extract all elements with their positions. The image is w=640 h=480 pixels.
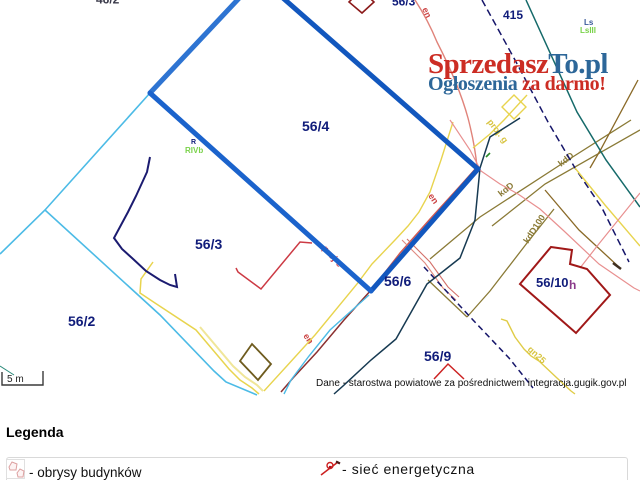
svg-text:415: 415 [503,8,523,22]
svg-text:56/3: 56/3 [392,0,416,9]
svg-text:LsIII: LsIII [580,26,596,35]
svg-text:h: h [569,278,576,292]
svg-text:RIVb: RIVb [185,146,203,155]
svg-text:56/9: 56/9 [424,348,451,364]
svg-text:56/4: 56/4 [302,118,329,134]
svg-text:56/2: 56/2 [68,313,95,329]
svg-text:46/2: 46/2 [96,0,120,7]
svg-text:56/10: 56/10 [536,275,569,290]
svg-text:56/6: 56/6 [384,273,411,289]
svg-text:R: R [191,139,196,146]
svg-text:5 m: 5 m [7,374,24,385]
svg-text:56/3: 56/3 [195,236,222,252]
